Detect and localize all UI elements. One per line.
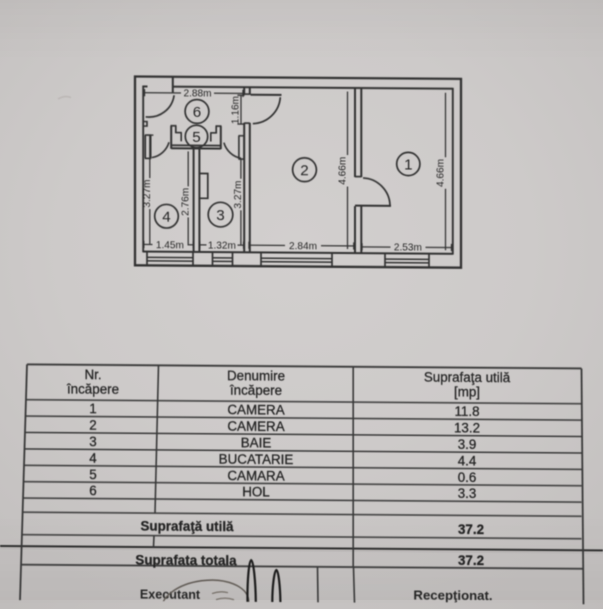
svg-text:[mp]: [mp] [454,384,480,399]
svg-text:1.45m: 1.45m [156,240,184,251]
svg-text:2: 2 [300,162,308,179]
svg-text:Suprafata totala: Suprafata totala [135,552,237,568]
svg-text:4: 4 [89,451,97,466]
svg-text:Denumire: Denumire [227,368,285,383]
svg-text:2.53m: 2.53m [394,243,422,254]
svg-text:4: 4 [162,209,170,226]
svg-text:CAMERA: CAMERA [227,419,284,434]
svg-text:1: 1 [89,401,96,416]
svg-text:2.88m: 2.88m [183,88,211,99]
svg-text:4.66m: 4.66m [435,159,446,187]
svg-text:Recepţionat.: Recepţionat. [413,588,492,604]
svg-text:37.2: 37.2 [458,553,484,568]
svg-text:3: 3 [89,434,96,449]
svg-text:1.32m: 1.32m [208,240,236,251]
svg-text:HOL: HOL [242,484,270,499]
svg-text:4.66m: 4.66m [337,157,348,185]
svg-text:2.84m: 2.84m [289,241,317,252]
svg-text:Suprafaţă utilă: Suprafaţă utilă [140,519,234,535]
svg-text:37.2: 37.2 [458,522,484,537]
svg-text:3.3: 3.3 [458,486,477,501]
svg-text:2.76m: 2.76m [180,188,191,216]
svg-text:3: 3 [216,207,224,224]
svg-text:3.27m: 3.27m [233,180,244,208]
svg-text:6: 6 [193,104,201,121]
svg-text:BUCATARIE: BUCATARIE [219,452,294,468]
svg-text:0.6: 0.6 [458,470,477,485]
svg-text:2: 2 [89,418,96,433]
svg-text:CAMARA: CAMARA [227,468,284,483]
svg-text:CAMERA: CAMERA [227,402,284,417]
svg-text:Nr.: Nr. [84,367,101,382]
svg-text:1.16m: 1.16m [230,96,241,124]
svg-text:BAIE: BAIE [241,435,272,450]
svg-text:13.2: 13.2 [454,420,480,435]
svg-text:încăpere: încăpere [229,382,282,397]
svg-text:4.4: 4.4 [458,453,477,468]
svg-text:5: 5 [89,467,96,482]
svg-text:3.27m: 3.27m [142,180,153,208]
svg-text:1: 1 [404,156,412,173]
svg-text:încăpere: încăpere [66,381,119,396]
svg-text:5: 5 [192,129,200,146]
svg-text:3.9: 3.9 [458,437,477,452]
svg-text:11.8: 11.8 [454,404,479,419]
svg-text:6: 6 [89,483,96,498]
svg-text:Suprafaţa utilă: Suprafaţa utilă [424,370,511,386]
